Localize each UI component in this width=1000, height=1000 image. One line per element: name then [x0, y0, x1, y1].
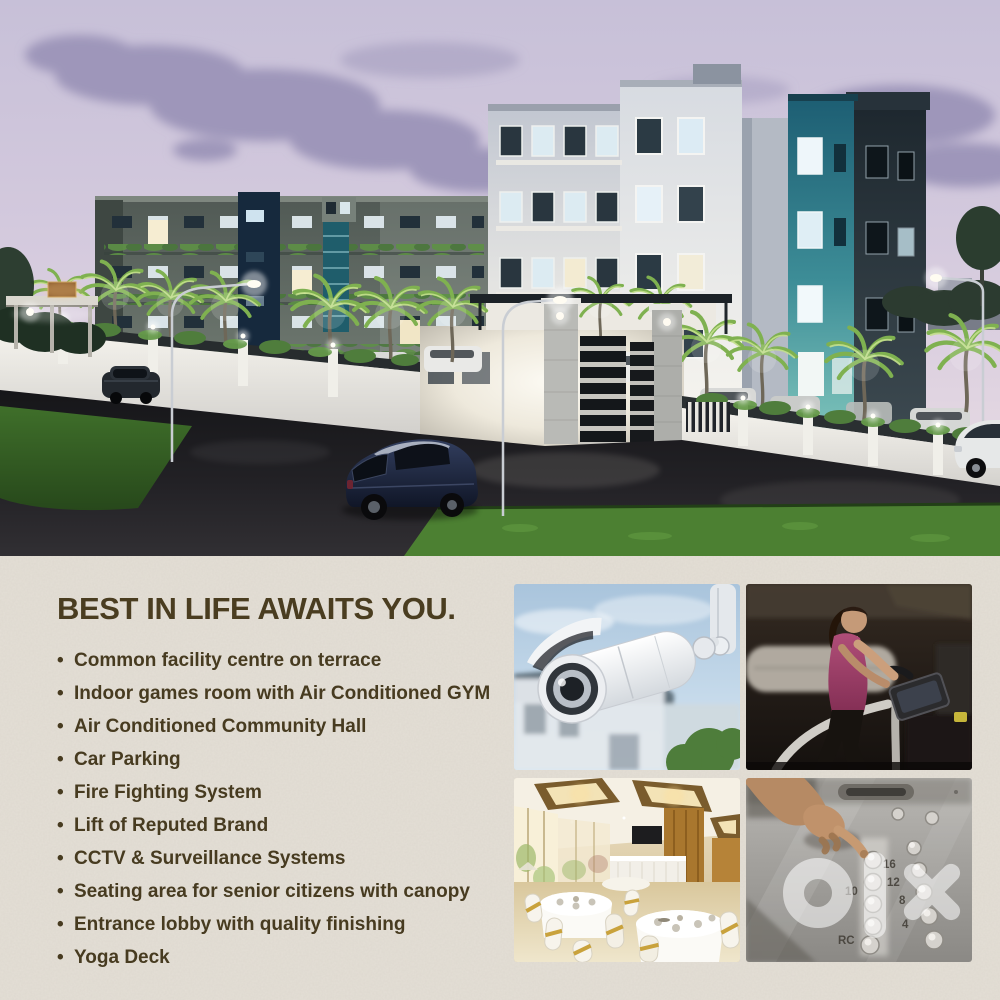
property-rendering-image — [0, 0, 1000, 556]
gate-panel-left — [580, 336, 626, 458]
photo-cctv-camera — [514, 584, 740, 770]
olx-letter-o — [783, 858, 853, 928]
amenity-item: Fire Fighting System — [57, 776, 512, 809]
amenities-panel: BEST IN LIFE AWAITS YOU. Common facility… — [57, 591, 512, 974]
amenities-list: Common facility centre on terrace Indoor… — [57, 644, 512, 974]
amenity-item: CCTV & Surveillance Systems — [57, 842, 512, 875]
amenity-item: Seating area for senior citizens with ca… — [57, 875, 512, 908]
amenity-item: Lift of Reputed Brand — [57, 809, 512, 842]
amenity-item: Common facility centre on terrace — [57, 644, 512, 677]
gate-pillar-left — [544, 304, 578, 444]
olx-watermark — [783, 852, 969, 940]
amenity-item: Indoor games room with Air Conditioned G… — [57, 677, 512, 710]
amenity-item: Yoga Deck — [57, 941, 512, 974]
olx-letter-l — [864, 852, 886, 938]
listing-flyer: BEST IN LIFE AWAITS YOU. Common facility… — [0, 0, 1000, 1000]
amenity-item: Air Conditioned Community Hall — [57, 710, 512, 743]
lawn-strip — [404, 504, 1000, 556]
photo-banquet-hall — [514, 778, 740, 962]
olx-letter-x — [900, 860, 964, 924]
amenity-item: Entrance lobby with quality finishing — [57, 908, 512, 941]
headline: BEST IN LIFE AWAITS YOU. — [57, 591, 512, 627]
photo-gym — [746, 584, 972, 770]
picket-fence — [686, 402, 730, 432]
amenity-item: Car Parking — [57, 743, 512, 776]
gate-panel-right — [630, 342, 654, 448]
